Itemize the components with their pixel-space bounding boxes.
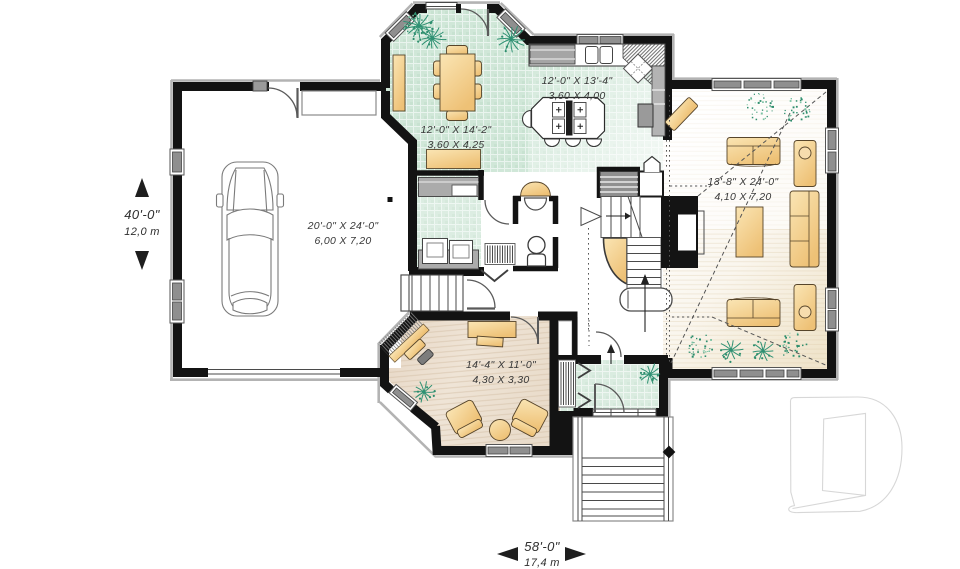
svg-text:14'-4" X 11'-0": 14'-4" X 11'-0"	[466, 359, 537, 371]
svg-text:4,10 X 7,20: 4,10 X 7,20	[714, 191, 771, 203]
svg-text:12'-0" X 13'-4": 12'-0" X 13'-4"	[542, 75, 614, 87]
svg-text:40'-0": 40'-0"	[124, 207, 161, 222]
svg-text:12'-0" X 14'-2": 12'-0" X 14'-2"	[421, 124, 493, 136]
svg-text:3,60 X 4,00: 3,60 X 4,00	[548, 90, 605, 102]
svg-text:4,30 X 3,30: 4,30 X 3,30	[472, 374, 529, 386]
svg-text:13'-8" X 24'-0": 13'-8" X 24'-0"	[708, 176, 780, 188]
svg-text:17,4 m: 17,4 m	[524, 557, 559, 569]
svg-text:6,00 X 7,20: 6,00 X 7,20	[314, 235, 371, 247]
svg-text:20'-0" X 24'-0": 20'-0" X 24'-0"	[307, 220, 380, 232]
svg-text:3,60 X 4,25: 3,60 X 4,25	[427, 139, 484, 151]
svg-text:12,0 m: 12,0 m	[124, 226, 159, 238]
svg-text:58'-0": 58'-0"	[524, 539, 561, 554]
